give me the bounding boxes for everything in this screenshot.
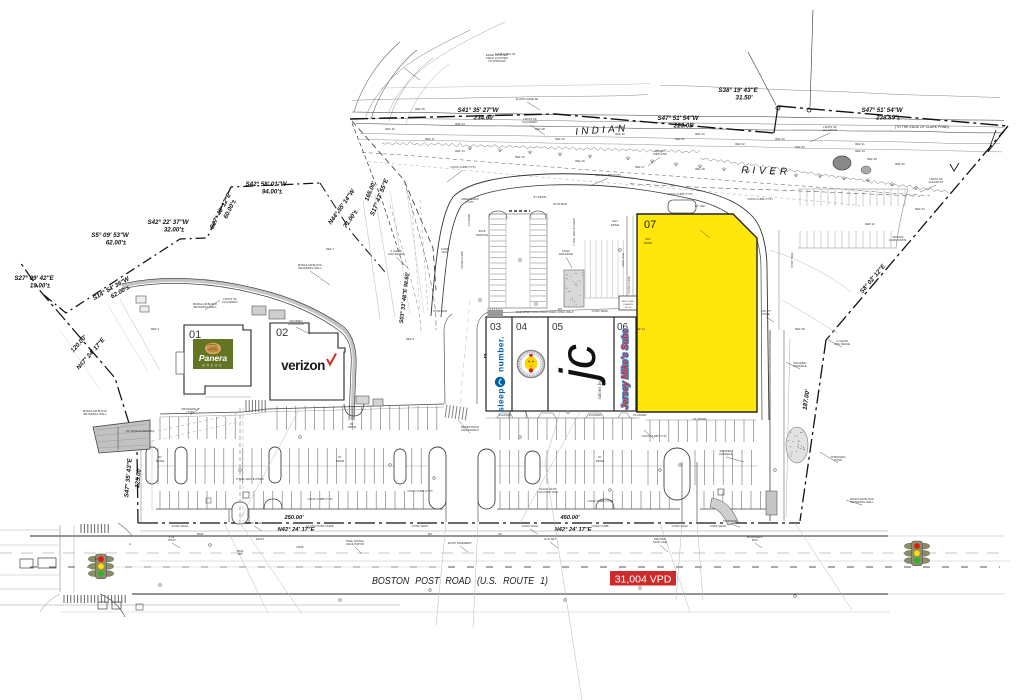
svg-text:REF 14: REF 14 xyxy=(635,327,645,331)
svg-text:7 TALL WHITE PINES: 7 TALL WHITE PINES xyxy=(572,218,576,246)
svg-text:CONC CURB (TYP): CONC CURB (TYP) xyxy=(747,197,772,201)
svg-text:WETLAND: WETLAND xyxy=(653,152,667,156)
svg-text:TRAF: TRAF xyxy=(196,532,204,536)
svg-text:CONC WALK: CONC WALK xyxy=(710,524,727,528)
svg-text:REF 33: REF 33 xyxy=(795,145,805,149)
svg-text:DOCK: DOCK xyxy=(625,307,632,309)
svg-text:04: 04 xyxy=(516,322,528,333)
svg-text:BOX: BOX xyxy=(752,538,758,542)
svg-text:S42° 58' 01"W: S42° 58' 01"W xyxy=(246,181,288,188)
svg-text:REF 32: REF 32 xyxy=(735,142,745,146)
svg-text:05: 05 xyxy=(552,322,564,333)
svg-text:250.00': 250.00' xyxy=(283,515,304,521)
svg-text:REF 35: REF 35 xyxy=(867,157,877,161)
svg-text:REF 31: REF 31 xyxy=(675,137,685,141)
svg-text:9 TALL WHITE PINES: 9 TALL WHITE PINES xyxy=(236,477,264,481)
svg-text:jc: jc xyxy=(550,344,606,386)
svg-text:234.60': 234.60' xyxy=(473,115,495,122)
svg-text:WALK/PAD: WALK/PAD xyxy=(559,252,573,256)
svg-text:450.00': 450.00' xyxy=(559,515,580,521)
svg-text:DRIVE: DRIVE xyxy=(156,459,165,463)
svg-text:verizon: verizon xyxy=(281,358,325,373)
svg-text:CONC WALK: CONC WALK xyxy=(246,521,263,525)
svg-text:STOP LINE: STOP LINE xyxy=(653,540,668,544)
svg-text:CONC CURB: CONC CURB xyxy=(460,251,464,268)
svg-text:REF 3: REF 3 xyxy=(151,327,159,331)
svg-text:GV: GV xyxy=(498,532,502,536)
svg-text:FLUSH CONC CURB: FLUSH CONC CURB xyxy=(307,524,334,528)
svg-text:ON 6/25/2015: ON 6/25/2015 xyxy=(488,59,506,63)
svg-text:03: 03 xyxy=(490,322,502,333)
svg-text:WV: WV xyxy=(428,532,433,536)
svg-text:RIVER: RIVER xyxy=(741,165,791,178)
svg-text:REF 7: REF 7 xyxy=(326,247,334,251)
svg-text:24" OAK: 24" OAK xyxy=(695,204,706,208)
svg-text:REF 9: REF 9 xyxy=(406,337,414,341)
svg-text:HANDRAIL: HANDRAIL xyxy=(793,364,808,368)
svg-text:19.00'±: 19.00'± xyxy=(30,283,51,290)
svg-text:LINK FENCE: LINK FENCE xyxy=(388,252,405,256)
svg-text:STOP BAR: STOP BAR xyxy=(553,202,567,206)
svg-text:RETAINING WALL: RETAINING WALL xyxy=(193,305,217,309)
svg-text:CONC CURB (TYP): CONC CURB (TYP) xyxy=(667,192,692,196)
svg-text:S38° 19' 43"E: S38° 19' 43"E xyxy=(718,87,758,94)
svg-text:RETAINING WALL: RETAINING WALL xyxy=(298,266,322,270)
svg-text:WV: WV xyxy=(558,307,563,311)
svg-text:DRIVE: DRIVE xyxy=(644,241,653,245)
svg-text:REF 26: REF 26 xyxy=(385,127,395,131)
svg-text:PLANTER: PLANTER xyxy=(634,413,647,417)
svg-text:REF 22: REF 22 xyxy=(865,222,875,226)
svg-text:12: 12 xyxy=(94,557,98,561)
svg-text:PLANTER: PLANTER xyxy=(694,417,707,421)
svg-text:number.: number. xyxy=(496,336,506,372)
svg-text:CONC CURB: CONC CURB xyxy=(627,276,631,293)
svg-text:salons by: salons by xyxy=(597,380,602,400)
svg-text:REF 28: REF 28 xyxy=(535,127,545,131)
svg-text:REF 28: REF 28 xyxy=(795,327,805,331)
svg-text:POST: POST xyxy=(168,538,176,542)
svg-text:02: 02 xyxy=(276,327,288,339)
svg-text:A-048 CONC 30: A-048 CONC 30 xyxy=(495,52,516,56)
svg-text:REF 27: REF 27 xyxy=(615,125,625,129)
svg-text:CONC WALK: CONC WALK xyxy=(412,524,429,528)
svg-text:REF 15: REF 15 xyxy=(515,155,525,159)
svg-text:STOP BAR: STOP BAR xyxy=(723,519,737,523)
svg-text:N42° 24' 17"E: N42° 24' 17"E xyxy=(554,527,592,533)
svg-text:REF 25: REF 25 xyxy=(415,107,425,111)
svg-text:EXIST PAVEMENT: EXIST PAVEMENT xyxy=(448,541,472,545)
svg-text:S47° 51' 54"W: S47° 51' 54"W xyxy=(658,115,700,122)
svg-text:REF 18: REF 18 xyxy=(695,167,705,171)
svg-text:FLOODWAY: FLOODWAY xyxy=(222,300,238,304)
svg-text:A: A xyxy=(129,542,131,546)
svg-text:FLOOD ZONE AE: FLOOD ZONE AE xyxy=(516,97,539,101)
svg-text:S27° 09' 42"E: S27° 09' 42"E xyxy=(14,275,54,282)
svg-text:STOP BAR: STOP BAR xyxy=(433,309,447,313)
svg-text:ELEVATED CONC WDW OVER CONC WA: ELEVATED CONC WDW OVER CONC WALK xyxy=(516,310,574,314)
svg-text:CLEARCUT: CLEARCUT xyxy=(928,180,943,184)
svg-text:CONC CURB (TYP): CONC CURB (TYP) xyxy=(307,497,332,501)
svg-text:CONC WALK: CONC WALK xyxy=(592,309,609,313)
svg-text:Panera: Panera xyxy=(199,353,228,363)
svg-text:REF 29: REF 29 xyxy=(695,132,705,136)
svg-text:GUARDRAIL: GUARDRAIL xyxy=(288,322,305,326)
svg-text:CONC WALK: CONC WALK xyxy=(522,524,539,528)
svg-text:RETAINING WALL: RETAINING WALL xyxy=(83,412,107,416)
svg-text:ENCLOSED: ENCLOSED xyxy=(622,301,634,303)
svg-text:CONC CURB (TYP): CONC CURB (TYP) xyxy=(587,499,612,503)
svg-text:CONC CURB (TYP): CONC CURB (TYP) xyxy=(450,165,475,169)
svg-text:FACILITATOR: FACILITATOR xyxy=(346,542,364,546)
svg-text:CONC CURB (TYP): CONC CURB (TYP) xyxy=(595,173,620,177)
svg-text:BOSTON POST ROAD (U.S. ROUTE 1: BOSTON POST ROAD (U.S. ROUTE 1) xyxy=(372,576,548,587)
svg-text:Jersey Mike's Subs: Jersey Mike's Subs xyxy=(620,328,630,409)
svg-text:REF 17: REF 17 xyxy=(635,165,645,169)
svg-text:(TO THE EDGE OF CLARK POND): (TO THE EDGE OF CLARK POND) xyxy=(895,125,949,129)
svg-text:CONC CURB (TYP): CONC CURB (TYP) xyxy=(641,434,666,438)
svg-text:FLOODWAY: FLOODWAY xyxy=(522,120,538,124)
svg-text:RETAINING WALL: RETAINING WALL xyxy=(850,500,874,504)
svg-text:LOADING: LOADING xyxy=(623,303,633,306)
svg-text:CROSSWALK: CROSSWALK xyxy=(461,428,479,432)
svg-text:REF 34: REF 34 xyxy=(855,149,865,153)
svg-text:REF 31: REF 31 xyxy=(855,142,865,146)
svg-text:DRIVE: DRIVE xyxy=(611,223,620,227)
svg-text:REF 29: REF 29 xyxy=(555,137,565,141)
svg-text:STOP SIGN: STOP SIGN xyxy=(790,252,794,267)
svg-text:sleep: sleep xyxy=(496,388,506,412)
svg-text:BREAD: BREAD xyxy=(203,364,224,368)
svg-text:62.00'±: 62.00'± xyxy=(106,240,127,247)
svg-text:REF 16: REF 16 xyxy=(575,159,585,163)
svg-text:07: 07 xyxy=(644,219,656,231)
svg-text:223.08': 223.08' xyxy=(673,123,695,130)
svg-text:12 DRIVE: 12 DRIVE xyxy=(467,214,471,227)
svg-text:S41° 35' 27"W: S41° 35' 27"W xyxy=(458,107,500,114)
svg-text:EXIST: EXIST xyxy=(256,537,264,541)
svg-text:PARKING: PARKING xyxy=(476,233,488,237)
svg-text:LAND LINE: LAND LINE xyxy=(621,253,625,268)
svg-text:HANDRAIL: HANDRAIL xyxy=(719,452,734,456)
svg-text:PAVE: PAVE xyxy=(296,545,303,549)
svg-text:32.00'±: 32.00'± xyxy=(164,227,185,234)
svg-text:(TYP): (TYP) xyxy=(466,200,473,204)
svg-text:PLANTER: PLANTER xyxy=(499,413,511,417)
svg-text:DRIVE: DRIVE xyxy=(596,459,605,463)
svg-text:ON CONC PAD: ON CONC PAD xyxy=(538,490,558,494)
svg-text:DRIVE: DRIVE xyxy=(336,459,345,463)
svg-text:REF 27: REF 27 xyxy=(425,137,435,141)
svg-text:CONC WALK: CONC WALK xyxy=(172,524,189,528)
svg-text:S47° 51' 54"W: S47° 51' 54"W xyxy=(862,107,904,114)
svg-text:CLEARCUT: CLEARCUT xyxy=(822,128,837,132)
svg-text:20' WIDE EASEMENT: 20' WIDE EASEMENT xyxy=(126,429,154,433)
svg-text:31.50': 31.50' xyxy=(736,95,753,102)
svg-text:REF 23: REF 23 xyxy=(915,207,925,211)
svg-text:REF 14: REF 14 xyxy=(455,149,465,153)
svg-text:S5° 09' 53"W: S5° 09' 53"W xyxy=(91,232,130,239)
svg-text:SIG: SIG xyxy=(238,552,243,556)
svg-text:PLANTER: PLANTER xyxy=(589,413,601,417)
svg-text:REF 30: REF 30 xyxy=(615,132,625,136)
svg-text:SIGN: SIGN xyxy=(442,250,449,254)
svg-text:POLE: POLE xyxy=(762,312,770,316)
svg-text:S42° 22' 37"W: S42° 22' 37"W xyxy=(148,219,190,226)
svg-text:REF 30: REF 30 xyxy=(775,137,785,141)
svg-text:94.00'±: 94.00'± xyxy=(262,189,283,196)
svg-text:DRIVE: DRIVE xyxy=(348,425,357,429)
svg-text:CONC CURB: CONC CURB xyxy=(592,524,609,528)
svg-text:CONC CURB (TYP): CONC CURB (TYP) xyxy=(407,489,432,493)
svg-text:8Y DRIVE: 8Y DRIVE xyxy=(534,195,547,199)
svg-text:REF 24: REF 24 xyxy=(455,122,465,126)
svg-text:REF 36: REF 36 xyxy=(895,162,905,166)
svg-text:HYD SET: HYD SET xyxy=(544,537,556,541)
svg-text:CONC WALK: CONC WALK xyxy=(672,524,689,528)
svg-text:31,004 VPD: 31,004 VPD xyxy=(615,574,672,586)
svg-text:238.89'±: 238.89'± xyxy=(875,115,900,122)
svg-text:HORIZONTAL: HORIZONTAL xyxy=(889,238,907,242)
